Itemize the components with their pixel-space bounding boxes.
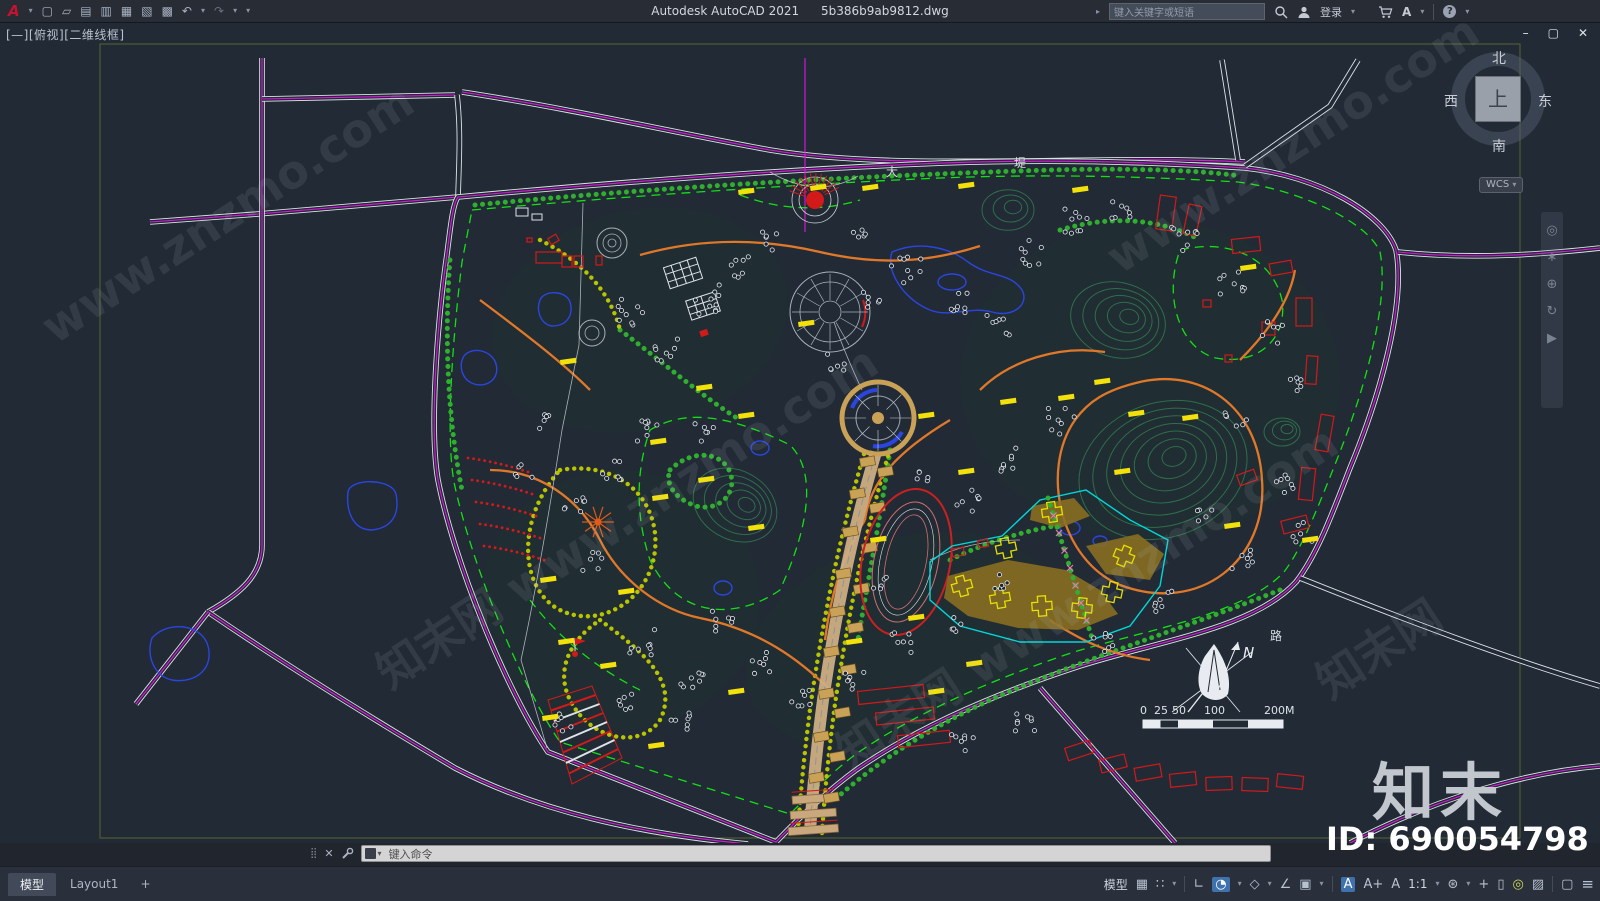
command-wrench-icon[interactable] <box>341 847 354 860</box>
annotation-visibility-toggle[interactable]: A <box>1341 877 1356 892</box>
annotation-scale-value[interactable]: 1:1 <box>1408 877 1427 891</box>
viewcube-east[interactable]: 东 <box>1538 91 1552 111</box>
workspace-gear-icon[interactable]: ⊛ <box>1448 878 1459 891</box>
scale-tick: 200M <box>1264 704 1295 717</box>
command-caret-icon[interactable]: ▾ <box>378 849 382 858</box>
search-placeholder: 键入关键字或短语 <box>1114 4 1194 19</box>
navigation-bar[interactable]: ◎ ∗ ⊕ ↻ ▶ <box>1541 212 1563 408</box>
pan-icon[interactable]: ∗ <box>1547 251 1558 264</box>
command-input[interactable]: ▾ 键入命令 <box>361 845 1271 862</box>
scale-tick: 100 <box>1204 704 1225 717</box>
customization-menu[interactable]: ≡ <box>1581 877 1594 892</box>
tab-model[interactable]: 模型 <box>8 873 56 896</box>
isolate-objects-toggle[interactable]: ◎ <box>1512 878 1523 891</box>
object-snap-toggle[interactable]: ▣ <box>1299 878 1311 891</box>
road-label: 堤 <box>1014 156 1026 170</box>
autodesk-app-icon[interactable]: A <box>1402 5 1411 19</box>
annotation-autoscale-toggle[interactable]: A+ <box>1363 878 1383 891</box>
graphics-performance-toggle[interactable]: ▨ <box>1532 878 1544 891</box>
cart-icon[interactable] <box>1378 5 1393 19</box>
viewcube-north[interactable]: 北 <box>1492 48 1506 68</box>
isodraft-caret-icon[interactable]: ▾ <box>1268 880 1272 888</box>
north-label: N <box>1243 644 1254 662</box>
znzmo-brand-watermark: 知末 <box>1372 742 1508 832</box>
quick-properties-toggle[interactable]: ▯ <box>1497 878 1504 891</box>
road-label: 路 <box>1270 628 1282 643</box>
document-title: 5b386b9ab9812.dwg <box>821 4 949 18</box>
status-bar: 模型 Layout1 + 模型 ▦ ∷ ▾ ∟ ◔ ▾ ◇ ▾ ∠ ▣ ▾ A … <box>0 866 1600 901</box>
wcs-selector[interactable]: WCS ▾ <box>1479 177 1523 193</box>
isodraft-toggle[interactable]: ◇ <box>1250 878 1260 891</box>
grid-toggle[interactable]: ▦ <box>1136 878 1148 891</box>
tab-layout1[interactable]: Layout1 <box>58 874 130 894</box>
search-input[interactable]: 键入关键字或短语 <box>1109 3 1265 20</box>
annotation-monitor-toggle[interactable]: + <box>1478 878 1489 891</box>
polar-caret-icon[interactable]: ▾ <box>1238 880 1242 888</box>
model-space-label[interactable]: 模型 <box>1104 876 1128 893</box>
autocad-window: { "window": { "app_title": "Autodesk Aut… <box>0 0 1600 900</box>
sign-in-link[interactable]: 登录 <box>1320 4 1342 20</box>
search-icon[interactable] <box>1274 5 1288 19</box>
divider <box>1184 876 1185 892</box>
scale-caret-icon[interactable]: ▾ <box>1435 880 1439 888</box>
viewport-controls[interactable]: [—][俯视][二维线框] <box>6 26 125 43</box>
object-snap-tracking-toggle[interactable]: ∠ <box>1280 878 1292 891</box>
viewcube[interactable]: 上 北 西 东 南 <box>1438 48 1562 172</box>
divider <box>1433 4 1434 20</box>
layout-tabs: 模型 Layout1 + <box>8 873 159 896</box>
drawing-canvas[interactable]: 大 堤 路 N 0 25 50 100 200M www.znzmo.com 知… <box>0 0 1600 900</box>
object-snap-caret-icon[interactable]: ▾ <box>1320 880 1324 888</box>
expand-search-icon[interactable]: ▸ <box>1096 8 1100 16</box>
zoom-icon[interactable]: ⊕ <box>1547 278 1558 291</box>
annotation-scale-indicator[interactable]: A <box>1391 878 1400 891</box>
command-prompt-icon <box>365 848 376 859</box>
close-button[interactable]: ✕ <box>1578 26 1588 40</box>
add-layout-button[interactable]: + <box>132 875 158 893</box>
viewcube-west[interactable]: 西 <box>1444 91 1458 111</box>
scale-tick: 0 <box>1140 704 1147 717</box>
command-close-icon[interactable]: ✕ <box>324 847 333 860</box>
workspace-caret-icon[interactable]: ▾ <box>1466 880 1470 888</box>
drawing-id-watermark: ID: 690054798 <box>1326 820 1589 858</box>
signin-caret-icon[interactable]: ▾ <box>1351 8 1355 16</box>
scale-tick: 25 <box>1154 704 1168 717</box>
user-icon[interactable] <box>1297 5 1311 19</box>
command-line: ⣿ ✕ ▾ 键入命令 <box>310 845 1271 862</box>
minimize-button[interactable]: – <box>1523 26 1529 40</box>
orbit-icon[interactable]: ↻ <box>1547 305 1558 318</box>
wcs-label: WCS <box>1486 179 1509 190</box>
viewcube-top-face[interactable]: 上 <box>1475 76 1521 122</box>
snap-caret-icon[interactable]: ▾ <box>1172 880 1176 888</box>
autodesk-caret-icon[interactable]: ▾ <box>1420 8 1424 16</box>
ortho-toggle[interactable]: ∟ <box>1193 878 1204 891</box>
help-caret-icon[interactable]: ▾ <box>1465 8 1469 16</box>
showmotion-icon[interactable]: ▶ <box>1547 332 1557 345</box>
maximize-button[interactable]: ▢ <box>1548 26 1559 40</box>
app-title: Autodesk AutoCAD 2021 <box>651 4 799 18</box>
status-toggles: 模型 ▦ ∷ ▾ ∟ ◔ ▾ ◇ ▾ ∠ ▣ ▾ A A+ A 1:1 ▾ ⊛ … <box>1104 876 1594 893</box>
window-controls: – ▢ ✕ <box>1523 26 1588 40</box>
command-grip-handle[interactable]: ⣿ <box>310 848 317 859</box>
road-label: 大 <box>886 165 898 179</box>
divider <box>1552 876 1553 892</box>
command-placeholder: 键入命令 <box>389 846 433 862</box>
divider <box>1332 876 1333 892</box>
navigation-wheel-icon[interactable]: ◎ <box>1546 224 1557 237</box>
viewcube-south[interactable]: 南 <box>1492 136 1506 156</box>
polar-tracking-toggle[interactable]: ◔ <box>1212 877 1229 892</box>
wcs-caret-icon: ▾ <box>1512 180 1516 189</box>
snap-toggle[interactable]: ∷ <box>1156 878 1164 891</box>
scale-tick: 50 <box>1172 704 1186 717</box>
infocenter: ▸ 键入关键字或短语 登录 ▾ A ▾ ? ▾ <box>1096 3 1469 20</box>
help-icon[interactable]: ? <box>1443 5 1456 18</box>
clean-screen-toggle[interactable]: ▢ <box>1561 878 1573 891</box>
